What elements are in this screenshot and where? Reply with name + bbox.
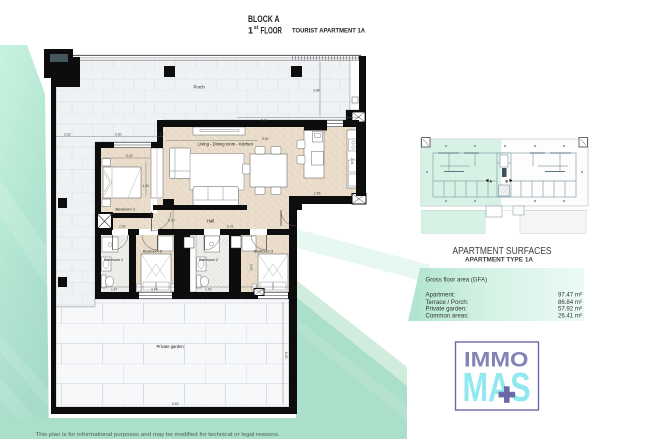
svg-text:2.65: 2.65 (314, 192, 321, 196)
svg-text:st: st (254, 25, 259, 31)
svg-text:6.31: 6.31 (227, 225, 234, 229)
svg-text:2.04: 2.04 (350, 158, 354, 165)
svg-text:1.00: 1.00 (168, 219, 175, 223)
svg-text:Bedroom 3: Bedroom 3 (254, 248, 273, 253)
svg-text:3.19: 3.19 (151, 288, 158, 292)
svg-text:26.41 m²: 26.41 m² (558, 312, 582, 319)
svg-text:Gross floor area (GFA): Gross floor area (GFA) (426, 277, 488, 284)
svg-text:4.30: 4.30 (143, 184, 150, 188)
svg-text:3.10: 3.10 (259, 288, 266, 292)
svg-text:Apartment:: Apartment: (426, 292, 456, 299)
svg-text:3.30: 3.30 (115, 133, 122, 137)
svg-text:2.33: 2.33 (64, 133, 71, 137)
svg-text:APARTMENT SURFACES: APARTMENT SURFACES (453, 246, 552, 257)
svg-text:6.90: 6.90 (284, 352, 288, 359)
svg-text:9.24: 9.24 (261, 119, 268, 123)
svg-text:TOURIST APARTMENT 1A: TOURIST APARTMENT 1A (292, 28, 365, 35)
svg-text:9.69: 9.69 (172, 402, 179, 406)
svg-text:3.00: 3.00 (249, 264, 253, 271)
svg-text:Porch: Porch (194, 85, 206, 90)
svg-text:Bathroom 2: Bathroom 2 (199, 258, 218, 262)
svg-text:MAS: MAS (463, 364, 531, 410)
svg-text:Bathroom 1: Bathroom 1 (104, 258, 123, 262)
svg-text:This plan is for informational: This plan is for informational purposes … (36, 432, 280, 438)
svg-text:Bedroom 2: Bedroom 2 (143, 248, 162, 253)
svg-text:APARTMENT TYPE 1A: APARTMENT TYPE 1A (465, 256, 533, 263)
svg-text:9.50: 9.50 (262, 137, 269, 141)
svg-text:BLOCK A: BLOCK A (248, 14, 280, 24)
svg-text:97.47 m²: 97.47 m² (558, 292, 582, 299)
svg-text:FLOOR: FLOOR (261, 25, 283, 35)
svg-text:3.98: 3.98 (313, 89, 320, 93)
svg-text:Bedroom 1: Bedroom 1 (116, 207, 136, 212)
svg-text:Private garden: Private garden (157, 344, 185, 349)
svg-text:Hall: Hall (207, 219, 214, 224)
svg-text:5.20: 5.20 (126, 154, 133, 158)
svg-text:Living - Dining room - Kitchen: Living - Dining room - Kitchen (198, 141, 254, 146)
svg-text:1.10: 1.10 (157, 132, 164, 136)
svg-text:1.67: 1.67 (111, 288, 118, 292)
svg-text:2.90: 2.90 (119, 225, 126, 229)
svg-text:1.00: 1.00 (205, 288, 212, 292)
svg-text:Common areas:: Common areas: (426, 312, 470, 319)
